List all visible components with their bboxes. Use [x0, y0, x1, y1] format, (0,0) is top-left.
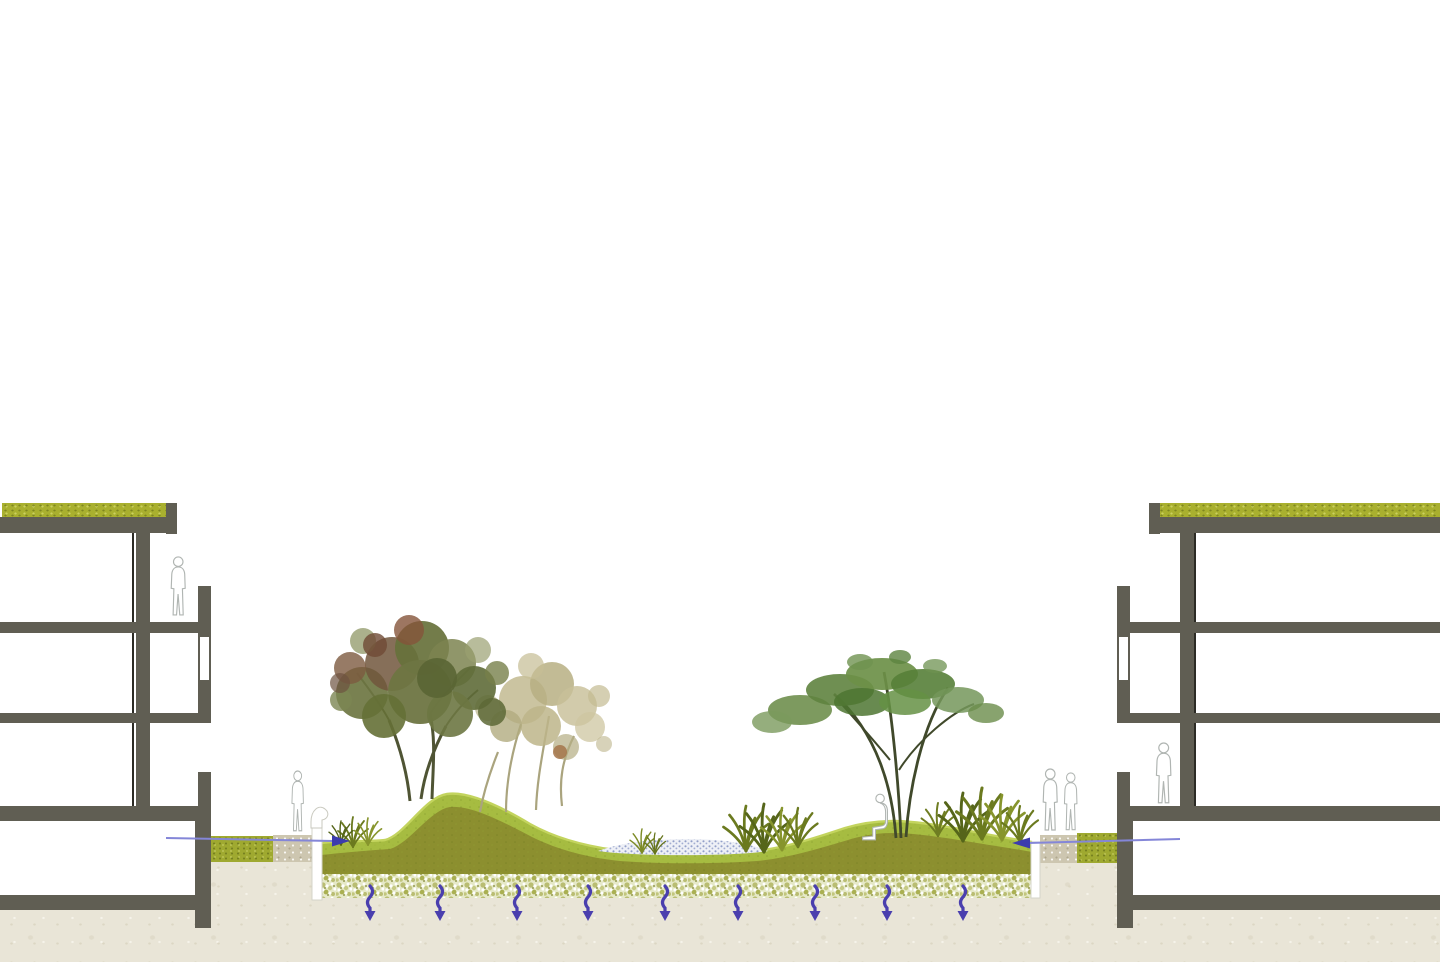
left-planting-strip	[211, 836, 273, 862]
left-basement-interior	[0, 821, 195, 895]
person-right-paving-1	[1043, 769, 1057, 830]
left-roof-slab	[0, 517, 177, 533]
left-ground-slab	[0, 806, 211, 821]
right-floor-slab-2	[1117, 622, 1440, 633]
right-wall-upper	[1117, 586, 1130, 622]
right-window-f2	[1119, 637, 1128, 680]
tree-right	[752, 650, 1004, 838]
right-column-f1	[1180, 723, 1194, 806]
left-glazing-line-f2	[132, 633, 134, 713]
left-column-f1	[136, 723, 150, 806]
gravel-drainage-layer	[322, 872, 1032, 898]
right-column-f2	[1180, 633, 1194, 713]
person-left-balcony	[171, 557, 185, 615]
rain-garden-section	[300, 598, 1045, 932]
tree-left-front	[330, 615, 509, 801]
left-wall-stub	[198, 772, 211, 806]
right-glazing-line-f1	[1194, 723, 1196, 806]
left-floor-slab-1	[0, 713, 211, 723]
right-retaining-edge	[1031, 842, 1040, 898]
right-glazing-line-f2	[1194, 633, 1196, 713]
right-glazing-line-f3	[1194, 533, 1196, 622]
left-inlet-spout	[311, 807, 328, 828]
left-column-f2	[136, 633, 150, 713]
right-paving-block	[1040, 835, 1077, 863]
right-column-f3	[1180, 533, 1194, 622]
right-basement-wall	[1117, 821, 1133, 928]
left-basement-wall	[195, 821, 211, 928]
left-wall-upper	[198, 586, 211, 622]
right-ground-slab	[1117, 806, 1440, 821]
left-green-roof	[2, 503, 166, 518]
left-retaining-edge	[312, 818, 322, 900]
right-wall-stub	[1117, 772, 1130, 806]
turf-texture	[312, 794, 1032, 874]
left-floor-slab-2	[0, 622, 211, 633]
right-floor-slab-1	[1117, 713, 1440, 723]
person-right-paving-2	[1064, 773, 1076, 830]
right-basement-slab	[1133, 895, 1440, 910]
left-window-f2	[200, 637, 209, 680]
right-basement-interior	[1133, 821, 1440, 895]
left-glazing-line-f3	[132, 533, 134, 622]
left-column-f3	[136, 533, 150, 622]
right-planting-strip	[1077, 833, 1117, 863]
person-right-interior	[1156, 743, 1170, 803]
right-green-roof	[1158, 503, 1440, 518]
left-glazing-line-f1	[132, 723, 134, 806]
left-basement-slab	[0, 895, 195, 910]
right-roof-slab	[1149, 517, 1440, 533]
section-diagram	[0, 0, 1440, 962]
